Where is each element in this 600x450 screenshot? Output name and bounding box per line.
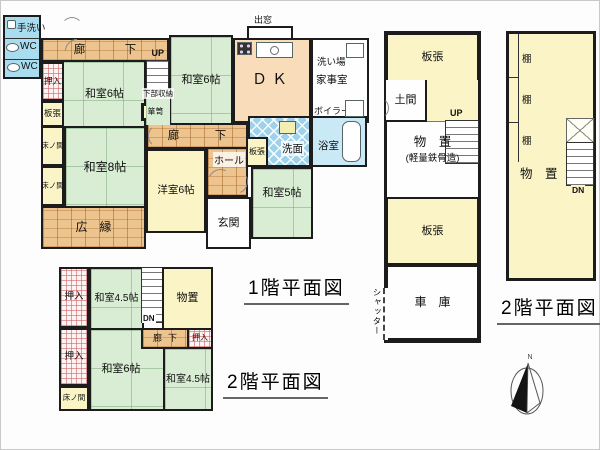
room-label: 和室4.5帖 — [166, 374, 210, 385]
annex2-stair-landing — [566, 118, 594, 143]
room-label-itabari-a: 板張 — [44, 109, 61, 118]
north-arrow-icon: N — [503, 349, 551, 426]
toilet-icon — [6, 43, 19, 52]
annex1-monooki-label: 物 置 (軽量鉄骨造) — [382, 131, 483, 164]
title-floor2-right: 2階平面図 — [497, 293, 600, 325]
room-tokonoma-b: 床ノ間 — [41, 166, 64, 206]
door-arc — [367, 97, 389, 119]
hand-wash-basin-icon — [7, 20, 16, 29]
room-2f-oshiire-b: 押入 — [187, 328, 213, 349]
room-label-washitsu8: 和室8帖 — [84, 161, 127, 174]
compass-north-label: N — [527, 354, 532, 361]
room-label-youshitsu6: 洋室6帖 — [157, 185, 194, 197]
room-2f-washitsu45-b: 和室4.5帖 — [163, 347, 213, 411]
room-label-washitsu6-b: 和室6帖 — [181, 74, 220, 86]
room-label-wc1: WC — [20, 41, 37, 52]
room-label: 板張 — [422, 225, 444, 237]
toilet-icon — [7, 63, 20, 72]
room-washitsu8: 和室8帖 — [64, 126, 146, 210]
room-label: 車 庫 — [414, 296, 450, 309]
door-arc — [61, 17, 83, 39]
stove-icon — [237, 42, 252, 55]
room-label-oshiire: 押入 — [44, 77, 61, 86]
room-itabari-b: 板張 — [246, 137, 268, 167]
room-label: 押入 — [192, 334, 208, 343]
room-washitsu6-b: 和室6帖 — [169, 35, 233, 125]
room-label-senmen: 洗面 — [281, 141, 304, 156]
room-label: 物 置 — [382, 131, 483, 150]
room-label-araiba: 洗い場 — [317, 54, 346, 68]
shelf-divider — [509, 77, 519, 78]
room-label-wc2: WC — [21, 61, 38, 72]
room-label-dk: ＤＫ — [252, 72, 292, 89]
label-shutter: シャッター — [371, 288, 383, 336]
annex1-itabari-top: 板張 — [386, 33, 479, 82]
room-label-tearai: 手洗い — [17, 20, 46, 34]
room-label-hall: ホール — [213, 152, 245, 167]
room-washitsu5: 和室5帖 — [251, 167, 313, 239]
room-label-sub: (軽量鉄骨造) — [382, 150, 483, 164]
label-shelf-3: 棚 — [522, 133, 532, 147]
annex1-garage: 車 庫 — [386, 265, 479, 340]
room-label-tokonoma-b: 床ノ間 — [41, 182, 64, 190]
room-label-corridor: 廊 下 — [74, 44, 151, 57]
stairs-up-label: UP — [150, 48, 165, 58]
shelf-column — [509, 34, 519, 162]
room-hiroen: 広 縁 — [41, 206, 146, 249]
room-label: 押入 — [64, 292, 83, 302]
shelf-divider — [509, 122, 519, 123]
room-label-itabari-b: 板張 — [249, 148, 265, 157]
title-floor2-left: 2階平面図 — [223, 367, 328, 399]
room-yokushitsu: 浴室 — [311, 116, 367, 167]
room-label-kajishitsu: 家事室 — [316, 72, 348, 87]
room-2f-corridor: 廊下 — [141, 328, 189, 349]
label-shelf-1: 棚 — [522, 51, 532, 65]
room-label-tokonoma-a: 床ノ間 — [41, 142, 64, 150]
room-label-corridor-mid: 廊 下 — [168, 130, 239, 143]
bathtub-icon — [342, 121, 361, 162]
label-shelf-2: 棚 — [522, 92, 532, 106]
room-itabari-a: 板張 — [41, 101, 64, 127]
washbasin-icon — [279, 121, 296, 134]
floorplan-canvas: 手洗い WC WC 廊 下 UP 和室6帖 押入 板張 下部収納 箪笥 和室6帖… — [0, 0, 600, 450]
room-youshitsu6: 洋室6帖 — [146, 149, 206, 233]
boiler-icon — [345, 100, 364, 117]
annex2-monooki-label: 物 置 — [520, 163, 558, 182]
room-label-hiroen: 広 縁 — [75, 221, 111, 234]
kitchen-sink-icon — [256, 42, 293, 58]
washer-icon — [346, 43, 364, 58]
room-label: 廊下 — [153, 334, 183, 344]
room-2f-tokonoma: 床ノ間 — [59, 386, 89, 411]
room-label: 床ノ間 — [63, 394, 86, 402]
staircase-1f — [146, 60, 169, 91]
room-kajishitsu: 洗い場 家事室 ボイラー — [311, 38, 369, 123]
room-label: 和室6帖 — [101, 363, 140, 375]
room-label-tansu: 箪笥 — [148, 108, 164, 117]
room-2f-oshiire-a: 押入 — [59, 267, 89, 328]
room-label: 板張 — [422, 51, 444, 63]
stairs-dn-label: DN — [142, 314, 156, 323]
room-corridor-top: 廊 下 UP — [41, 38, 169, 62]
room-label-yokushitsu: 浴室 — [318, 138, 339, 153]
room-oshiire-1f: 押入 — [41, 62, 64, 101]
annex2-staircase — [566, 142, 594, 186]
room-genkan: 玄関 — [206, 197, 251, 249]
room-label: 土間 — [395, 94, 417, 106]
room-label-genkan: 玄関 — [218, 217, 240, 229]
room-2f-oshiire-c: 押入 — [59, 328, 89, 386]
annex1-doma: 土間 — [386, 80, 427, 122]
room-dk: ＤＫ — [233, 38, 311, 123]
label-lower-storage: 下部収納 — [142, 88, 174, 99]
room-tokonoma-a: 床ノ間 — [41, 126, 64, 166]
room-wc-block: 手洗い WC WC — [3, 15, 41, 79]
room-label: 和室4.5帖 — [95, 293, 139, 304]
annex1-itabari-bottom: 板張 — [386, 197, 479, 265]
room-label-washitsu5: 和室5帖 — [262, 187, 301, 199]
wall-divider — [5, 59, 39, 60]
title-floor1: 1階平面図 — [244, 273, 349, 305]
stairs-up-label: UP — [449, 108, 464, 118]
room-label-washitsu6-a: 和室6帖 — [85, 88, 124, 100]
room-2f-washitsu45-a: 和室4.5帖 — [89, 267, 144, 330]
wall-divider — [5, 38, 39, 39]
room-label: 押入 — [64, 352, 83, 362]
stairs-dn-label: DN — [571, 185, 585, 195]
garage-shutter-opening — [383, 288, 388, 340]
room-label: 物置 — [177, 292, 199, 304]
room-2f-monooki: 物置 — [162, 267, 213, 330]
label-bay-window: 出窓 — [253, 13, 273, 26]
